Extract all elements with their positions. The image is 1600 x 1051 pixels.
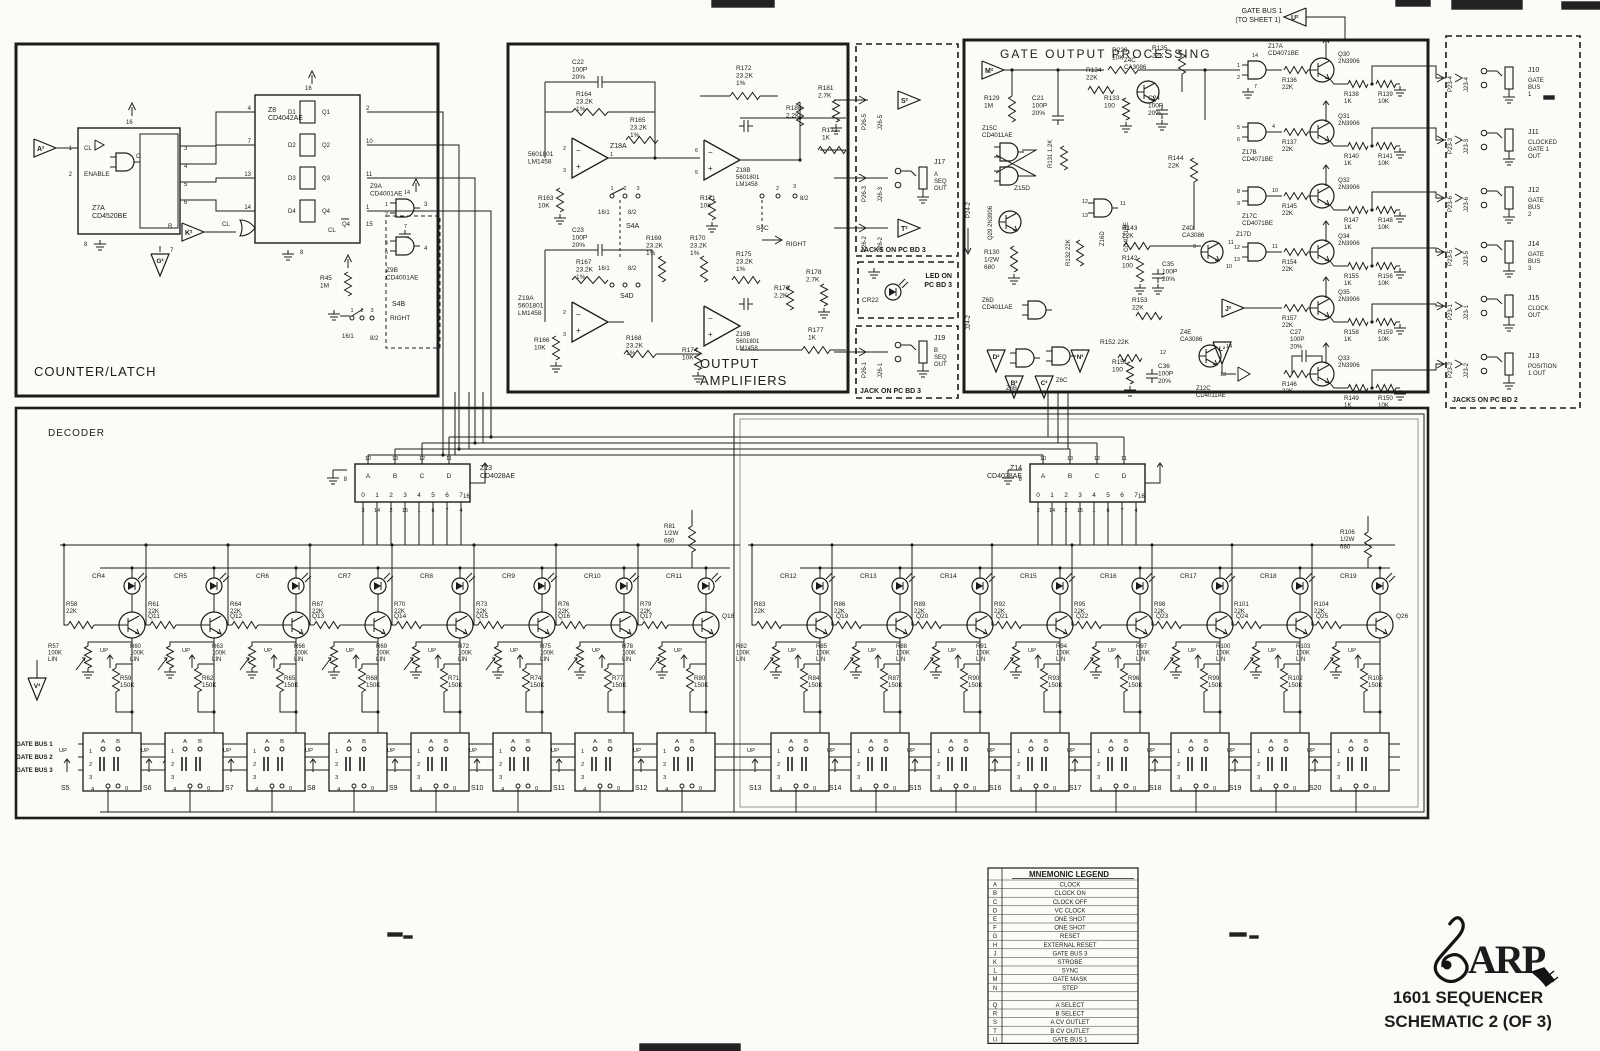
up-label: UP <box>633 748 641 754</box>
shape: R175 <box>736 251 752 258</box>
shape: R156 <box>1378 273 1393 280</box>
shape: A <box>993 883 997 889</box>
shape: UP <box>592 648 600 654</box>
label: 11 <box>1120 201 1126 207</box>
shape: 3 <box>1097 775 1100 781</box>
label: 7 <box>170 248 174 254</box>
scan-artifact <box>1396 0 1430 6</box>
shape: R71 <box>448 675 460 682</box>
shape: 16 <box>463 494 470 500</box>
label: 1 <box>1177 749 1180 755</box>
shape: Z17B <box>1242 149 1257 156</box>
gate-bus-label: GATE BUS 1 <box>16 741 53 748</box>
shape: R75 <box>540 644 552 650</box>
label: 3 <box>1078 492 1082 499</box>
shape: A <box>265 739 269 745</box>
legend-key: Q <box>993 1003 998 1009</box>
shape: 11 <box>366 172 373 178</box>
label: 8/2 <box>370 336 379 342</box>
pot-wiper <box>486 658 495 670</box>
label: R1782.7K <box>806 269 822 284</box>
shape: R148 <box>1378 217 1393 224</box>
label: 1 <box>663 749 666 755</box>
shape: P26-5 <box>862 113 868 130</box>
shape: SEQ <box>934 179 947 185</box>
shape: 150K <box>1208 682 1223 689</box>
led-pcb3-title: LED ONPC BD 3 <box>924 273 952 289</box>
shape: R98 <box>1154 601 1166 608</box>
shape: UP <box>1028 648 1036 654</box>
logic-gate <box>1248 243 1266 261</box>
shape: EXTERNAL RESET <box>1043 943 1096 949</box>
label: 3 <box>370 308 373 314</box>
legend-value: SYNC <box>1062 969 1079 975</box>
resistor <box>881 668 888 692</box>
label: 2 <box>417 762 420 768</box>
shape: 0 <box>371 786 374 792</box>
shape: J10 <box>1528 67 1539 74</box>
shape: UP <box>1108 648 1116 654</box>
label: 3 <box>335 775 338 781</box>
led-arrow-icon <box>902 282 908 288</box>
label: 16/1 <box>598 266 610 272</box>
shape: 3 <box>563 332 566 338</box>
wire <box>1364 692 1380 712</box>
shape: 11 <box>1121 456 1127 462</box>
shape: S12 <box>635 785 648 792</box>
ic-ref: Z17ACD4071BE <box>1268 43 1299 57</box>
junction-dot <box>798 116 801 119</box>
resistor <box>996 622 1022 629</box>
logic-gate <box>1094 199 1112 217</box>
shape: A <box>1029 739 1033 745</box>
shape: UP <box>907 748 915 754</box>
shape: 150K <box>888 682 903 689</box>
shape: R81 <box>664 523 676 530</box>
shape: 3 <box>1528 266 1532 272</box>
shape: CR13 <box>860 573 877 580</box>
jack-name: GATEBUS2 <box>1528 198 1544 218</box>
shape: Z15D <box>1014 185 1030 192</box>
junction-dot <box>376 566 379 569</box>
label: B <box>1284 739 1288 745</box>
shape: 3 <box>663 775 666 781</box>
led-arrow-icon <box>466 573 472 579</box>
shape: UP <box>827 748 835 754</box>
switch-contact <box>623 194 627 198</box>
shape: CR22 <box>862 297 879 304</box>
shape: 150K <box>1368 682 1383 689</box>
shape: CR10 <box>584 573 601 580</box>
label: 1 <box>581 749 584 755</box>
label: 3 <box>499 775 502 781</box>
switch-ref: S5 <box>61 785 70 792</box>
shape: A <box>869 739 873 745</box>
ic-ref: Z9BCD4001AE <box>386 267 419 282</box>
title-block: ARP 1601 SEQUENCER SCHEMATIC 2 (OF 3) <box>1384 918 1558 1031</box>
resistor <box>523 668 530 692</box>
resistor <box>1173 646 1180 668</box>
shape: 0 <box>453 786 456 792</box>
label: 2 <box>171 762 174 768</box>
label: 2 <box>1237 75 1240 81</box>
shape: 100K <box>48 651 62 657</box>
shape: 22K <box>1132 305 1144 312</box>
wire <box>690 692 706 712</box>
jack-name: BSEQOUT <box>934 348 947 368</box>
jacks-pcb2-title: JACKS ON PC BD 2 <box>1452 397 1518 404</box>
label: 1 <box>1257 749 1260 755</box>
resistor <box>730 93 760 100</box>
label: C <box>1095 473 1100 480</box>
signal-name: C² <box>1041 380 1049 387</box>
up-label: UP <box>100 648 108 654</box>
shape: R101 <box>1234 601 1249 608</box>
shape: Q3 <box>322 176 331 182</box>
junction-dot <box>622 566 625 569</box>
label: 1 <box>171 749 174 755</box>
shape: R106 <box>1340 529 1355 536</box>
shape: Z7A <box>92 205 105 212</box>
switch-ref: S4A <box>626 223 640 230</box>
shape: C36 <box>1158 363 1170 370</box>
shape: 22K <box>1282 266 1294 273</box>
shape: CD4011AE <box>982 304 1013 311</box>
resistor <box>396 622 422 629</box>
label: 12 <box>1160 350 1166 356</box>
shape: GATE <box>1528 78 1544 84</box>
shape: Q1 <box>322 110 331 116</box>
resistor-ref: R9222K <box>994 601 1006 615</box>
shape: 9 <box>1237 201 1240 207</box>
connector-ref: J26-5 <box>878 114 884 130</box>
label: R1401K <box>1344 153 1359 167</box>
scan-artifact <box>404 936 412 938</box>
wire <box>1306 17 1345 40</box>
shape: 6 <box>184 200 188 206</box>
label: 14 <box>244 205 251 211</box>
switch-ref: S16 <box>989 785 1002 792</box>
shape: UP <box>1227 748 1235 754</box>
resistor <box>577 646 584 668</box>
shape: 2 <box>385 212 388 218</box>
shape: 22K <box>914 608 926 615</box>
shape: 14 <box>404 190 410 196</box>
label: 2 <box>89 762 92 768</box>
resistor <box>732 277 760 284</box>
shape: CD4028AE <box>987 473 1022 480</box>
shape: C27 <box>1290 329 1302 336</box>
label: R1581K <box>1344 329 1359 343</box>
shape: 20% <box>572 242 585 249</box>
label: 5 <box>184 182 188 188</box>
label: C36100P20% <box>1158 363 1173 385</box>
shape: A <box>1189 739 1193 745</box>
shape: R80 <box>694 675 706 682</box>
label: + <box>708 164 713 173</box>
label: 9 <box>1237 201 1240 207</box>
label: 8 <box>300 250 304 256</box>
shape: 100K <box>976 651 990 657</box>
logic-gate <box>1016 349 1034 367</box>
shape: − <box>576 146 581 155</box>
shape: R58 <box>66 601 78 608</box>
label: 14 <box>404 190 410 196</box>
label: 1 <box>1337 749 1340 755</box>
label: R14110K <box>1378 153 1393 167</box>
legend-value: GATE BUS 3 <box>1053 951 1089 957</box>
shape: SEQ <box>934 355 947 361</box>
resistor-ref: R811/2W680 <box>664 523 679 544</box>
label: 8/2 <box>628 210 637 216</box>
shape: CD4520BE <box>92 213 127 220</box>
resistor <box>1127 362 1134 384</box>
up-label: UP <box>1108 648 1116 654</box>
shape: MNEMONIC LEGEND <box>1029 870 1109 879</box>
label: 8 <box>84 242 88 248</box>
jack-body <box>1505 353 1513 375</box>
resistor <box>833 100 840 122</box>
shape: CL <box>84 146 92 152</box>
resistor <box>1077 240 1084 266</box>
legend-key: N <box>993 986 997 992</box>
label: 16 <box>126 120 133 126</box>
resistor <box>1013 646 1020 668</box>
logic-gate <box>396 237 414 255</box>
label: B <box>690 739 694 745</box>
shape: D4 <box>288 209 296 215</box>
up-label: UP <box>264 648 272 654</box>
up-label: UP <box>305 748 313 754</box>
label: 16 <box>305 86 312 92</box>
signal-name: V² <box>34 683 41 690</box>
shape: 2 <box>360 308 363 314</box>
jack-ref: J19 <box>934 335 945 342</box>
resistor-ref: R96150K <box>1128 675 1143 689</box>
arp-clef-logo <box>1435 918 1467 982</box>
scan-artifact <box>1544 96 1554 99</box>
connector-ref: P23-5 <box>1448 249 1454 266</box>
shape: 23.2K <box>626 343 644 350</box>
shape: LIN <box>896 657 905 663</box>
shape: R69 <box>376 644 388 650</box>
resistor <box>478 622 504 629</box>
label: 6 <box>1237 137 1240 143</box>
junction-dot <box>1218 566 1221 569</box>
ic-ref: Z7ACD4520BE <box>92 205 127 220</box>
pot-wiper <box>844 658 853 670</box>
shape: U <box>993 1037 997 1043</box>
up-label: UP <box>428 648 436 654</box>
resistor <box>1348 385 1368 392</box>
shape: 7 <box>170 248 174 254</box>
pot-ref: R69100KLIN <box>376 644 390 663</box>
shape: 2 <box>623 186 626 192</box>
shape: A <box>1109 739 1113 745</box>
shape: CLOCK <box>1060 883 1081 889</box>
shape: 1 <box>335 749 338 755</box>
pot-ref: R103100KLIN <box>1296 644 1311 663</box>
shape: S5 <box>61 785 70 792</box>
label: 11 <box>366 172 373 178</box>
resistor <box>1061 146 1068 170</box>
shape: Z19A <box>518 295 534 302</box>
shape: AMPLIFIERS <box>700 373 787 388</box>
shape: 100P <box>1032 103 1047 110</box>
resistor <box>659 256 666 282</box>
shape: CR9 <box>502 573 515 580</box>
switch-ref: S6 <box>143 785 152 792</box>
shape: S <box>993 1020 997 1026</box>
legend-title: MNEMONIC LEGEND <box>1029 870 1109 879</box>
led-arrow-icon <box>1226 573 1232 579</box>
connector-ref: P23-4 <box>1448 75 1454 92</box>
connector-ref: P23-2 <box>1448 361 1454 378</box>
shape: 0 <box>973 786 976 792</box>
junction-dot <box>1310 543 1313 546</box>
shape: R139 <box>1378 91 1393 98</box>
shape: LM1458 <box>518 310 542 317</box>
shape: 13 <box>1234 257 1240 263</box>
shape: UP <box>346 648 354 654</box>
resistor <box>68 622 94 629</box>
resistor <box>277 668 284 692</box>
pot-wiper <box>322 658 331 670</box>
junction-dot <box>62 543 65 546</box>
shape: 13 <box>392 456 398 462</box>
label: + <box>576 162 581 171</box>
shape: A SELECT <box>1056 1003 1085 1009</box>
wire <box>1497 299 1502 304</box>
label: 4 <box>1092 492 1096 499</box>
shape: 5 <box>1106 492 1110 499</box>
shape: R130 <box>984 249 1000 256</box>
pot-wiper <box>1324 658 1333 670</box>
transistor-ref: Q332N3906 <box>1338 355 1360 369</box>
shape: 5 <box>1237 125 1240 131</box>
resistor <box>853 646 860 668</box>
pot-ref: R94100KLIN <box>1056 644 1070 663</box>
shape: UP <box>633 748 641 754</box>
shape: S15 <box>909 785 922 792</box>
label: 0 <box>699 786 702 792</box>
shape: JACKS ON PC BD 2 <box>1452 397 1518 404</box>
label: R16523.2K1% <box>630 117 648 139</box>
label: 3 <box>184 146 188 152</box>
shape: 1/2W <box>664 530 679 537</box>
label: 11 <box>446 456 452 462</box>
signal-name: J² <box>1225 306 1232 313</box>
wire <box>1330 317 1348 322</box>
label: 0 <box>1053 786 1056 792</box>
led-arrow-icon <box>548 573 554 579</box>
scan-artifact <box>1562 2 1600 9</box>
label: R13722K <box>1282 139 1297 153</box>
wire <box>1372 304 1446 322</box>
shape: B <box>362 739 366 745</box>
shape: 22K <box>312 608 324 615</box>
label: 2 <box>385 212 388 218</box>
label: A <box>593 739 597 745</box>
junction-dot <box>390 543 393 546</box>
shape: 1 <box>1097 749 1100 755</box>
wire <box>362 692 378 712</box>
shape: 150K <box>1128 682 1143 689</box>
latch-cell <box>300 167 315 189</box>
label: 10 <box>365 456 371 462</box>
shape: + <box>708 330 713 339</box>
shape: 150K <box>448 682 463 689</box>
shape: 0 <box>289 786 292 792</box>
label: R16423.2K1% <box>576 91 594 113</box>
led-arrow-icon <box>906 573 912 579</box>
junction-dot <box>554 543 557 546</box>
label: R15422K <box>1282 259 1297 273</box>
up-label: UP <box>788 648 796 654</box>
label: 4 <box>1272 124 1275 130</box>
shape: 1 <box>375 492 379 499</box>
xor-gate <box>240 220 255 236</box>
pot-ref: R66100KLIN <box>294 644 308 663</box>
shape: B <box>1044 739 1048 745</box>
shape: 3 <box>335 775 338 781</box>
shape: CA3086 <box>1180 336 1203 343</box>
shape: R79 <box>640 601 652 608</box>
shape: 23.2K <box>736 259 754 266</box>
shape: C <box>1095 473 1100 480</box>
shape: 10K <box>1378 98 1390 105</box>
up-label: UP <box>1268 648 1276 654</box>
up-label: UP <box>182 648 190 654</box>
shape: LIN <box>816 657 825 663</box>
scan-artifact <box>388 933 402 936</box>
resistor <box>314 622 340 629</box>
shape: 1 <box>1177 749 1180 755</box>
legend-value: GATE MASK <box>1053 977 1088 983</box>
label: 11 <box>1121 456 1127 462</box>
shape: 100K <box>294 651 308 657</box>
label: R14810K <box>1378 217 1393 231</box>
label: ENABLE <box>84 171 110 178</box>
resistor <box>560 622 586 629</box>
resistor <box>1011 246 1018 272</box>
shape: 0 <box>1053 786 1056 792</box>
jack-body <box>1505 241 1513 263</box>
shape: 100K <box>1136 651 1150 657</box>
shape: 3 <box>777 775 780 781</box>
connector-ref: P24-2 <box>966 201 972 218</box>
resistor-ref: R6122K <box>148 601 160 615</box>
shape: R149 <box>1344 395 1359 402</box>
ic-ref: Z14CD4028AE <box>987 465 1022 480</box>
jack-name: ASEQOUT <box>934 172 947 192</box>
shape: 20% <box>1162 276 1175 283</box>
label: C21100P20% <box>1032 95 1047 117</box>
resistor-ref: R7922K <box>640 601 652 615</box>
legend-value: B CV OUTLET <box>1050 1029 1090 1035</box>
shape: 14 <box>1252 53 1258 59</box>
shape: R <box>993 1012 998 1018</box>
shape: LIN <box>376 657 385 663</box>
jack-j14 <box>1481 256 1487 262</box>
connector-ref: P26-1 <box>862 361 868 378</box>
shape: 150K <box>120 682 135 689</box>
shape: CR14 <box>940 573 957 580</box>
switch-contact <box>360 316 364 320</box>
schematic-title-line1: 1601 SEQUENCER <box>1393 988 1543 1007</box>
shape: 100K <box>1216 651 1230 657</box>
junction-dot <box>978 566 981 569</box>
